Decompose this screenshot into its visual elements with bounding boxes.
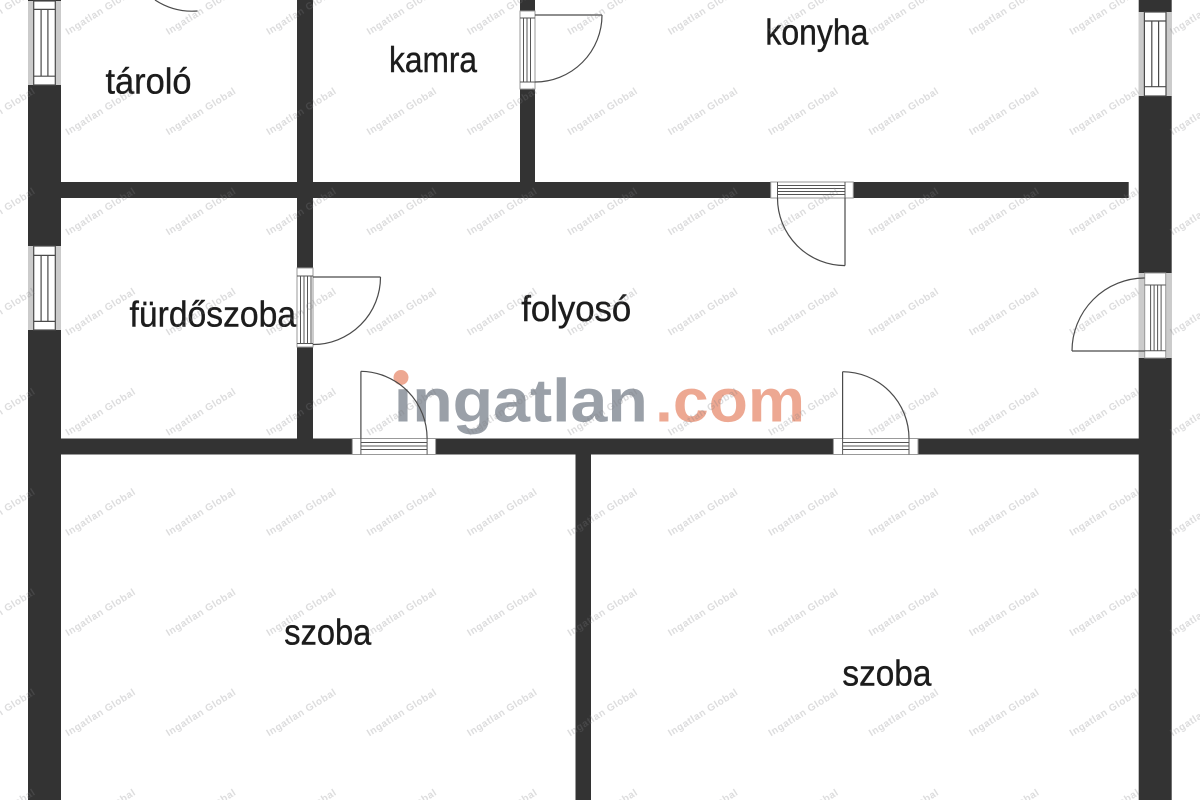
svg-text:kamra: kamra — [389, 39, 478, 80]
svg-text:szoba: szoba — [842, 653, 932, 694]
